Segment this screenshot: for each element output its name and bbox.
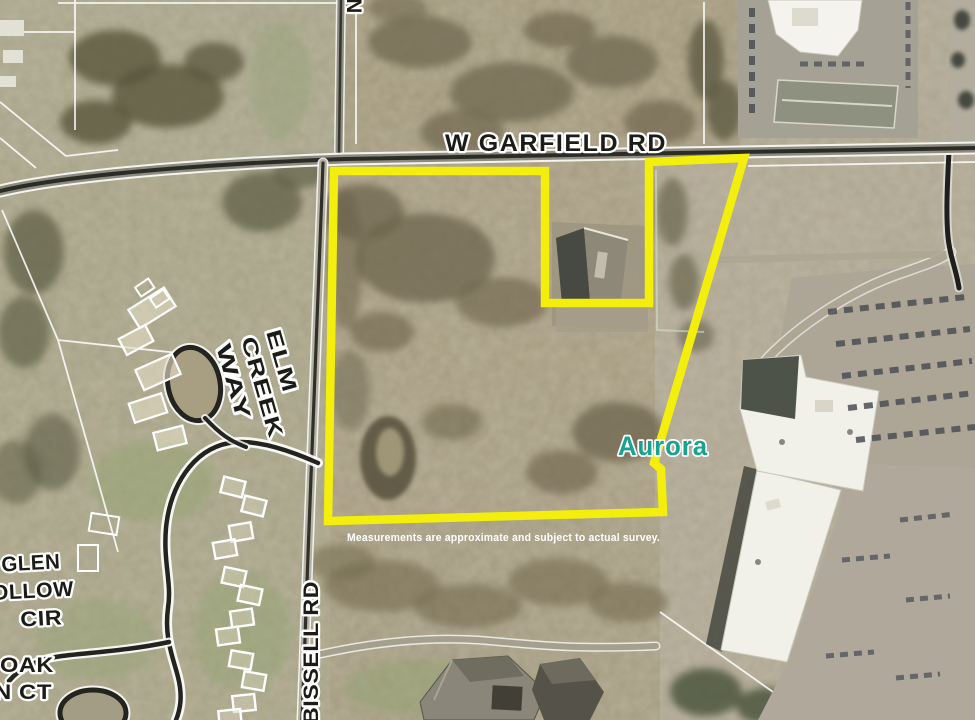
pond (360, 416, 416, 500)
label-disclaimer: Measurements are approximate and subject… (347, 532, 660, 544)
map-canvas: W GARFIELD RD N ELM CREEK WAY BISSELL RD… (0, 0, 975, 720)
svg-text:OAK: OAK (0, 654, 54, 677)
aerial-map: W GARFIELD RD N ELM CREEK WAY BISSELL RD… (0, 0, 975, 720)
svg-text:BISSELL RD: BISSELL RD (300, 581, 323, 720)
label-north-road-partial: N (342, 0, 365, 14)
notch-building (552, 222, 648, 332)
svg-text:N CT: N CT (0, 681, 52, 704)
svg-text:CIR: CIR (20, 606, 63, 631)
label-w-garfield-rd: W GARFIELD RD (445, 130, 667, 157)
label-bissell-rd: BISSELL RD (300, 581, 323, 720)
label-aurora: Aurora (618, 431, 708, 461)
svg-text:GLEN: GLEN (1, 550, 61, 576)
apartment-buildings (420, 656, 604, 720)
